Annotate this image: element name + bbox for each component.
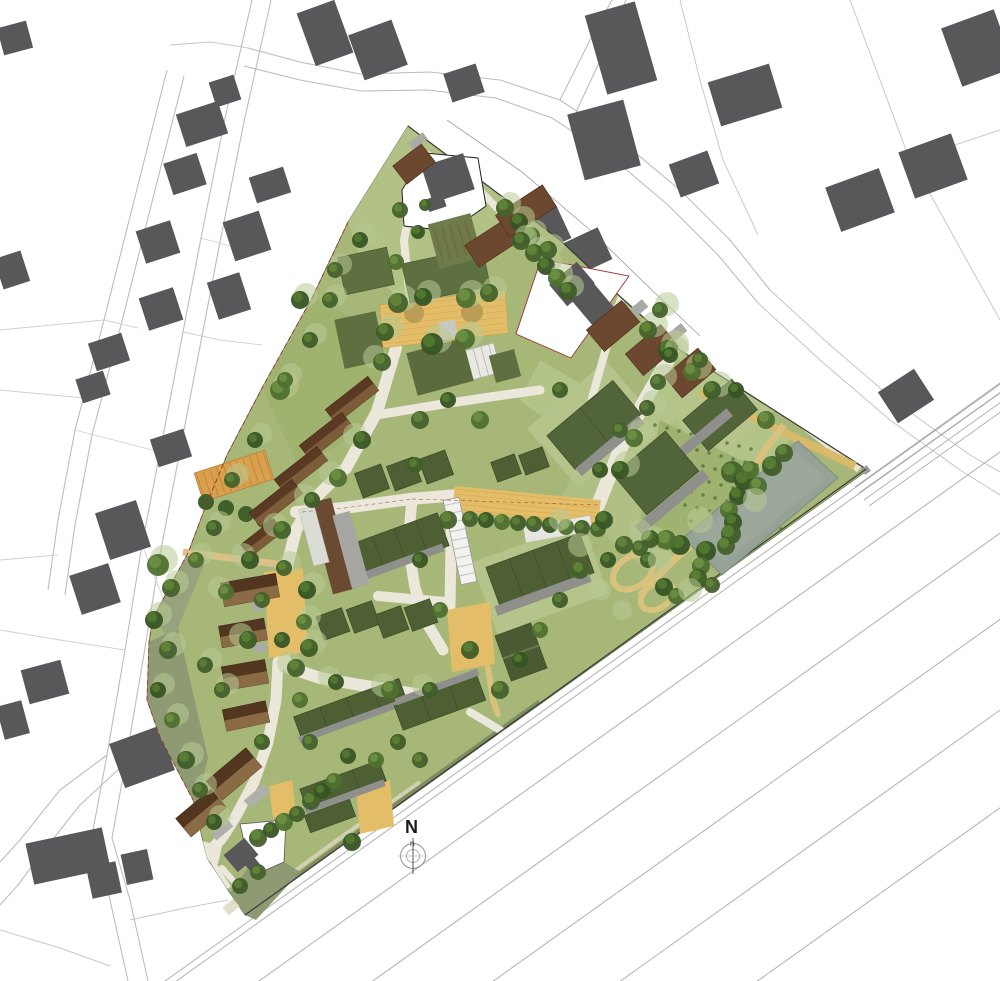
svg-text:N: N <box>405 817 418 837</box>
